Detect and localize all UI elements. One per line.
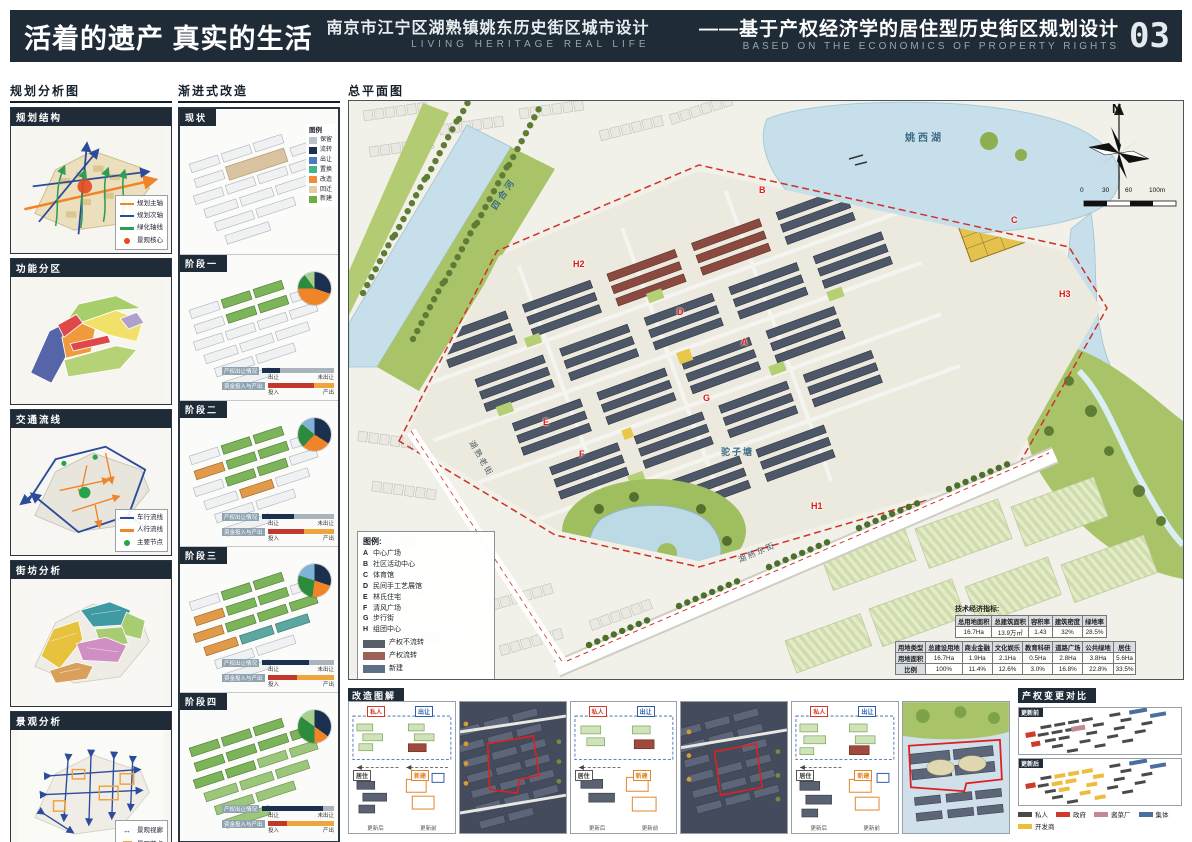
status-legend: 图例 保留 流转 出让 置换 改造 回迁 新建	[306, 124, 335, 207]
master-plan-map: 姚西湖 四合河 驼子塘 湖熟东街 湖熟老街 N 0 30 60 100m A B…	[348, 100, 1184, 680]
stage1-pie-chart	[298, 272, 331, 305]
renewal-panels: 现状 图例 保	[178, 107, 340, 842]
renewal-column: 渐进式改造 现状	[178, 82, 340, 842]
mark-A: A	[741, 337, 748, 347]
stage4-bars: 产权出让情况 出让未出让 资金投入与产出 投入产出	[222, 805, 334, 835]
plan-legend: 图例: A中心广场 B社区活动中心 C体育馆 D民间手工艺展馆 E林氏住宅 F清…	[357, 531, 495, 680]
presentation-board: 活着的遗产 真实的生活 南京市江宁区湖熟镇姚东历史街区城市设计 LIVING H…	[0, 0, 1192, 842]
renewal-section-title: 渐进式改造	[178, 82, 340, 103]
panel-status: 现状 图例 保	[180, 109, 338, 255]
mark-D: D	[677, 307, 684, 317]
panel-stage-4: 阶段四 产权出让情况	[180, 693, 338, 838]
panel-stage-3: 阶段三	[180, 547, 338, 693]
sheet-number: 03	[1129, 16, 1170, 56]
scale-60: 60	[1125, 187, 1132, 194]
mark-H3: H3	[1059, 289, 1071, 299]
renovation-diagram-2: 私人 出让 居住 新建 更新后更新前	[570, 701, 678, 834]
theme-title-en: BASED ON THE ECONOMICS OF PROPERTY RIGHT…	[699, 42, 1119, 53]
stage-tag: 阶段二	[180, 401, 227, 418]
lake-label: 姚西湖	[905, 129, 944, 144]
comparison-map-before: 更新前	[1018, 707, 1182, 755]
tag-residence: 居住	[353, 770, 371, 781]
tag-newbuild: 新建	[411, 770, 429, 781]
project-subtitle-en: LIVING HERITAGE REAL LIFE	[327, 40, 650, 51]
stage2-bars: 产权出让情况 出让未出让 资金投入与产出 投入产出	[222, 513, 334, 543]
mark-E: E	[543, 417, 549, 427]
panel-stage-1: 阶段一 产权出让情况	[180, 255, 338, 401]
mark-B: B	[759, 185, 766, 195]
mark-H2: H2	[573, 259, 585, 269]
swatch-transfer	[363, 652, 385, 660]
theme-title-cn: ——基于产权经济学的居住型历史街区规划设计	[699, 20, 1119, 40]
pond-label: 驼子塘	[721, 445, 754, 458]
renovation-plan-1	[459, 701, 567, 834]
analysis-section-title: 规划分析图	[10, 82, 172, 103]
indicator-table-summary: 总用地面积总建筑面积容积率建筑密度绿地率16.7Ha13.9万㎡1.4332%2…	[955, 615, 1107, 638]
stage3-pie-chart	[298, 564, 331, 597]
block-analysis-map	[11, 579, 171, 706]
panel-title: 功能分区	[11, 259, 171, 277]
stage-tag: 阶段三	[180, 547, 227, 564]
mark-C: C	[1011, 215, 1018, 225]
tag-private: 私人	[367, 706, 385, 717]
scale-0: 0	[1080, 187, 1084, 194]
corridor-arrow-swatch: ↔	[120, 823, 134, 838]
traffic-legend: 车行流线 人行流线 主要节点	[115, 509, 168, 552]
panel-block-analysis: 街坊分析	[10, 560, 172, 707]
stage1-bars: 产权出让情况 出让未出让 资金投入与产出 投入产出	[222, 367, 334, 397]
north-label: N	[1112, 101, 1121, 116]
stage4-pie-chart	[298, 710, 331, 743]
project-subtitle: 南京市江宁区湖熟镇姚东历史街区城市设计 LIVING HERITAGE REAL…	[327, 21, 650, 50]
panel-landscape-analysis: 景观分析	[10, 711, 172, 842]
swatch-no-transfer	[363, 640, 385, 648]
landscape-legend: ↔景观视廊 景观节点	[115, 820, 168, 842]
panel-stage-2: 阶段二	[180, 401, 338, 547]
title-bar: 活着的遗产 真实的生活 南京市江宁区湖熟镇姚东历史街区城市设计 LIVING H…	[10, 10, 1182, 62]
mark-H1: H1	[811, 501, 823, 511]
renovation-plan-3	[902, 701, 1010, 834]
project-subtitle-cn: 南京市江宁区湖熟镇姚东历史街区城市设计	[327, 21, 650, 38]
renovation-diagram-section: 改造图解	[348, 686, 1010, 834]
scale-bar	[1084, 201, 1176, 206]
stage-tag: 阶段四	[180, 693, 227, 710]
theme-title: ——基于产权经济学的居住型历史街区规划设计 BASED ON THE ECONO…	[699, 20, 1119, 52]
functional-zoning-map	[11, 277, 171, 404]
vehicle-line-swatch	[120, 517, 134, 520]
panel-title: 景观分析	[11, 712, 171, 730]
pedestrian-line-swatch	[120, 529, 134, 532]
ownership-comparison-section: 产权变更对比 更新前	[1018, 686, 1182, 834]
panel-planning-structure: 规划结构	[10, 107, 172, 254]
mark-G: G	[703, 393, 710, 403]
axis-green-swatch	[120, 227, 134, 230]
bottom-row: 改造图解	[348, 686, 1182, 834]
comparison-map-after: 更新后	[1018, 758, 1182, 806]
analysis-column: 规划分析图 规划结构	[10, 82, 172, 842]
panel-title: 交通流线	[11, 410, 171, 428]
indicator-table-landuse: 用地类型总建设用地商业金融文化娱乐教育科研道路广场公共绿地居住用地面积16.7H…	[895, 641, 1136, 675]
stage-tag: 阶段一	[180, 255, 227, 272]
panel-title: 街坊分析	[11, 561, 171, 579]
indicator-tables: 技术经济指标: 总用地面积总建筑面积容积率建筑密度绿地率16.7Ha13.9万㎡…	[895, 604, 1179, 675]
main-title: 活着的遗产 真实的生活	[10, 17, 313, 56]
stage2-pie-chart	[298, 418, 331, 451]
landscape-core-dot	[77, 179, 92, 194]
stage-tag: 现状	[180, 109, 216, 126]
node-dot-swatch	[124, 540, 130, 546]
tag-transfer: 出让	[415, 706, 433, 717]
axis-main-swatch	[120, 203, 134, 206]
swatch-new	[363, 665, 385, 673]
stage3-bars: 产权出让情况 出让未出让 资金投入与产出 投入产出	[222, 659, 334, 689]
scale-100: 100m	[1149, 187, 1165, 194]
ownership-comparison-title: 产权变更对比	[1018, 688, 1096, 703]
panel-title: 规划结构	[11, 108, 171, 126]
panel-functional-zoning: 功能分区	[10, 258, 172, 405]
panel-traffic-circulation: 交通流线	[10, 409, 172, 556]
core-dot-swatch	[124, 238, 130, 244]
axis-sub-swatch	[120, 215, 134, 218]
scale-30: 30	[1102, 187, 1109, 194]
structure-legend: 规划主轴 规划次轴 绿化轴线 景观核心	[115, 195, 168, 250]
renovation-diagram-3: 私人 出让 居住 新建 更新后更新前	[791, 701, 899, 834]
mark-F: F	[579, 449, 585, 459]
renovation-diagram-1: 私人 出让 居住 新建 更新后更新前	[348, 701, 456, 834]
masterplan-column: 总平面图	[348, 82, 1182, 834]
comparison-legend: 私人 政府 酱菜厂 集体 开发商	[1018, 809, 1182, 831]
renovation-plan-2	[680, 701, 788, 834]
